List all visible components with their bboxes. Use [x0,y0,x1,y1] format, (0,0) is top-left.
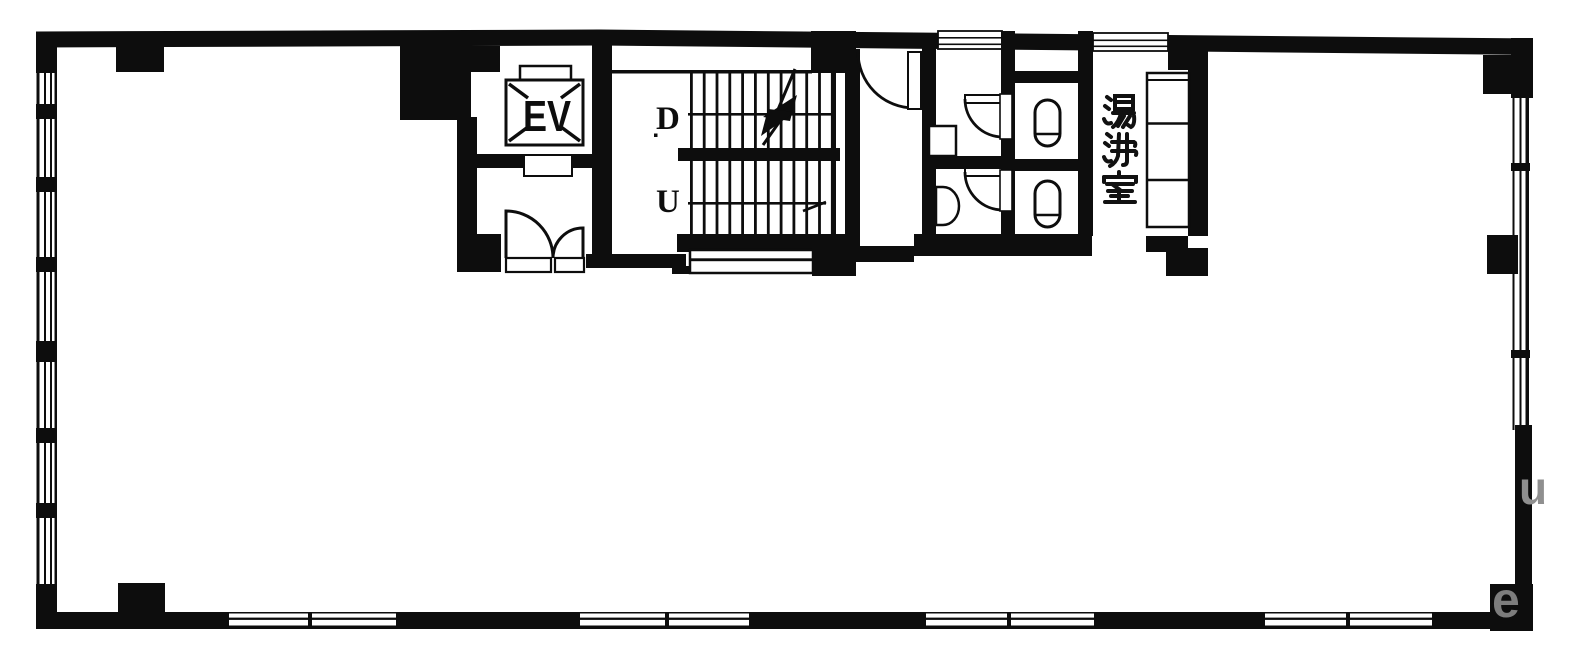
svg-text:EV: EV [523,92,572,141]
svg-text:u: u [1519,462,1547,514]
svg-text:e: e [1492,572,1520,628]
svg-text:D: D [656,101,680,137]
svg-text:U: U [656,184,680,220]
